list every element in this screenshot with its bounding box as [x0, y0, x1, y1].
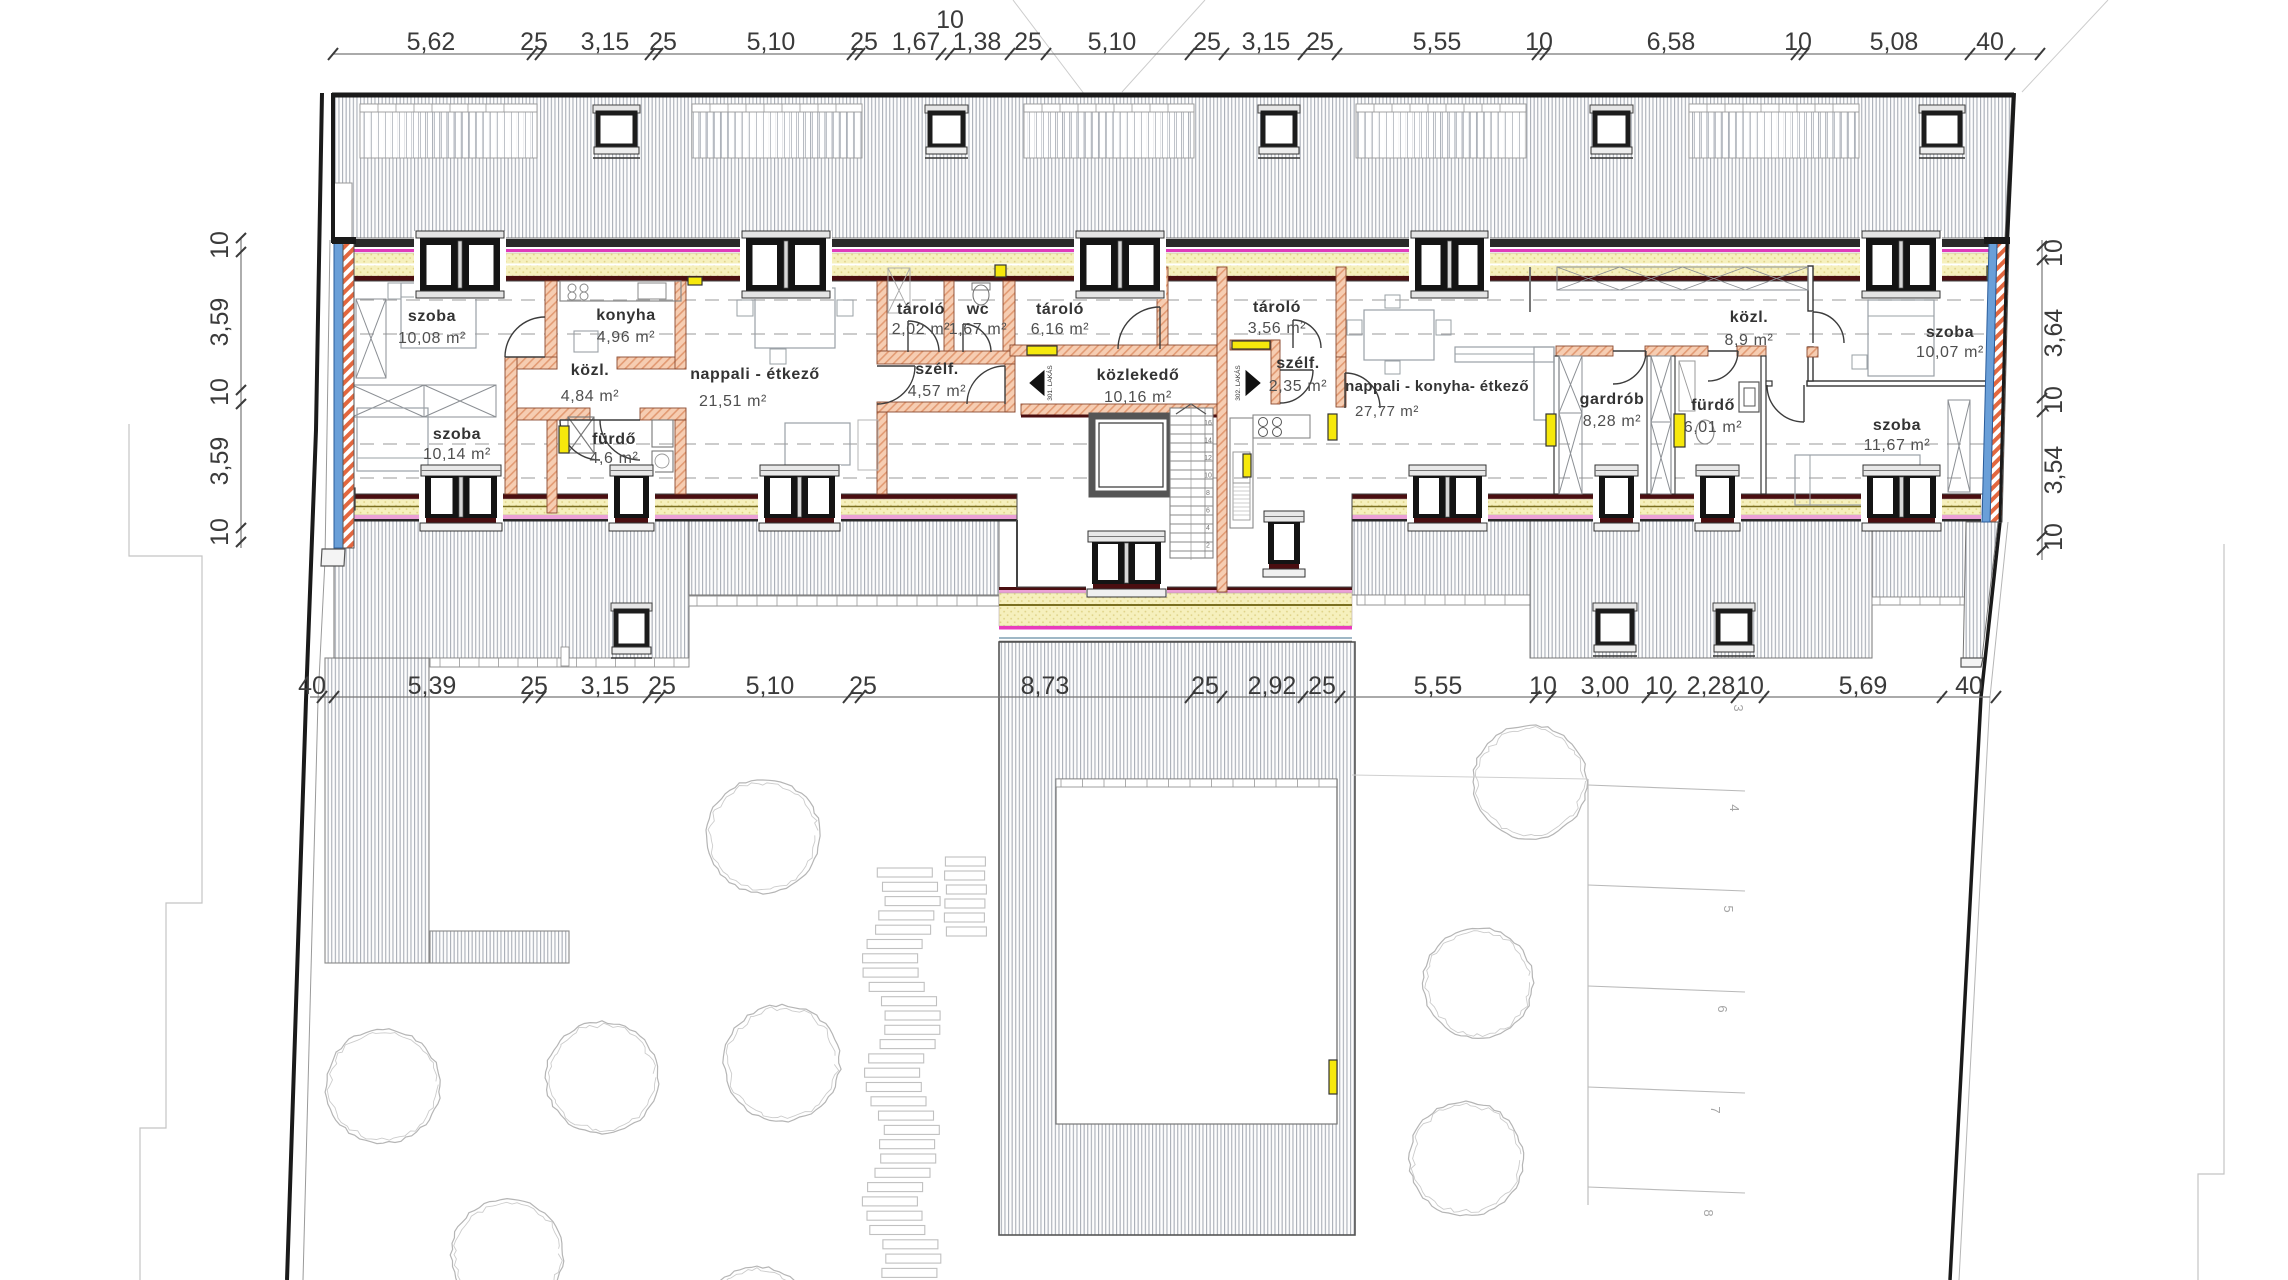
svg-text:3,59: 3,59	[206, 437, 234, 486]
svg-text:302. LAKÁS: 302. LAKÁS	[1233, 365, 1242, 401]
svg-text:5,08: 5,08	[1870, 28, 1919, 56]
svg-text:1,67: 1,67	[892, 28, 941, 56]
svg-text:8,73: 8,73	[1021, 672, 1070, 700]
svg-text:3,54: 3,54	[2040, 446, 2068, 495]
svg-text:11,67 m²: 11,67 m²	[1864, 437, 1931, 454]
svg-text:nappali - étkező: nappali - étkező	[690, 366, 820, 383]
svg-text:10: 10	[206, 378, 234, 406]
svg-text:3,15: 3,15	[581, 672, 630, 700]
svg-text:fürdő: fürdő	[1691, 397, 1735, 414]
svg-text:5,55: 5,55	[1413, 28, 1462, 56]
svg-text:szélf.: szélf.	[915, 361, 959, 378]
svg-text:12: 12	[1204, 455, 1212, 462]
svg-text:2,28: 2,28	[1687, 672, 1736, 700]
svg-text:25: 25	[1306, 28, 1334, 56]
svg-text:8: 8	[1701, 1209, 1716, 1216]
svg-text:10: 10	[2040, 523, 2068, 551]
svg-text:10: 10	[2040, 239, 2068, 267]
svg-text:10: 10	[936, 6, 964, 34]
svg-text:tároló: tároló	[897, 301, 945, 318]
svg-text:40: 40	[1976, 28, 2004, 56]
svg-text:szélf.: szélf.	[1276, 355, 1320, 372]
svg-text:3,15: 3,15	[1242, 28, 1291, 56]
svg-text:5,55: 5,55	[1414, 672, 1463, 700]
svg-text:10,14 m²: 10,14 m²	[423, 446, 491, 463]
svg-text:4,84 m²: 4,84 m²	[561, 388, 620, 405]
svg-text:2,02 m²: 2,02 m²	[892, 321, 951, 338]
svg-text:21,51 m²: 21,51 m²	[699, 393, 767, 410]
svg-text:5,39: 5,39	[408, 672, 457, 700]
svg-text:6,58: 6,58	[1647, 28, 1696, 56]
svg-text:40: 40	[1955, 672, 1983, 700]
svg-text:10: 10	[206, 518, 234, 546]
svg-text:5,69: 5,69	[1839, 672, 1888, 700]
svg-text:2,35 m²: 2,35 m²	[1269, 378, 1328, 395]
svg-text:16: 16	[1204, 420, 1212, 427]
svg-text:fürdő: fürdő	[592, 431, 636, 448]
svg-text:8: 8	[1206, 490, 1210, 497]
svg-text:8,9 m²: 8,9 m²	[1725, 332, 1774, 349]
svg-text:közl.: közl.	[1730, 309, 1769, 326]
svg-text:25: 25	[649, 28, 677, 56]
svg-text:10,08 m²: 10,08 m²	[398, 330, 466, 347]
svg-text:25: 25	[849, 672, 877, 700]
svg-text:1,67 m²: 1,67 m²	[949, 321, 1008, 338]
svg-text:nappali - konyha- étkező: nappali - konyha- étkező	[1345, 378, 1529, 395]
svg-text:5,10: 5,10	[746, 672, 795, 700]
svg-text:10: 10	[1736, 672, 1764, 700]
svg-text:szoba: szoba	[1926, 324, 1974, 341]
svg-text:3,64: 3,64	[2040, 309, 2068, 358]
svg-text:közl.: közl.	[571, 362, 610, 379]
svg-text:4,6 m²: 4,6 m²	[590, 450, 639, 467]
svg-text:8,28 m²: 8,28 m²	[1583, 413, 1642, 430]
svg-text:2: 2	[1206, 543, 1210, 550]
svg-text:10: 10	[1204, 473, 1212, 480]
svg-text:3: 3	[1731, 704, 1746, 711]
svg-text:25: 25	[1193, 28, 1221, 56]
svg-text:6: 6	[1715, 1005, 1730, 1012]
svg-text:5,62: 5,62	[407, 28, 456, 56]
svg-text:tároló: tároló	[1253, 299, 1301, 316]
svg-text:6,01 m²: 6,01 m²	[1684, 419, 1743, 436]
svg-text:25: 25	[520, 672, 548, 700]
svg-text:6: 6	[1206, 508, 1210, 515]
svg-text:wc: wc	[966, 301, 990, 318]
svg-text:gardrób: gardrób	[1580, 391, 1645, 408]
svg-text:10: 10	[206, 231, 234, 259]
svg-text:10: 10	[2040, 386, 2068, 414]
svg-text:tároló: tároló	[1036, 301, 1084, 318]
svg-text:3,00: 3,00	[1581, 672, 1630, 700]
svg-text:konyha: konyha	[596, 307, 656, 324]
svg-text:szoba: szoba	[1873, 417, 1921, 434]
svg-text:4: 4	[1206, 525, 1210, 532]
svg-text:szoba: szoba	[408, 308, 456, 325]
svg-text:4,96 m²: 4,96 m²	[597, 329, 656, 346]
svg-text:3,56 m²: 3,56 m²	[1248, 320, 1307, 337]
svg-text:3,15: 3,15	[581, 28, 630, 56]
svg-text:2,92: 2,92	[1248, 672, 1297, 700]
svg-text:7: 7	[1708, 1106, 1723, 1113]
svg-text:5,10: 5,10	[747, 28, 796, 56]
svg-text:14: 14	[1204, 438, 1212, 445]
svg-text:4,57 m²: 4,57 m²	[908, 383, 967, 400]
svg-text:5,10: 5,10	[1088, 28, 1137, 56]
svg-text:közlekedő: közlekedő	[1097, 367, 1180, 384]
svg-text:10,16 m²: 10,16 m²	[1104, 389, 1172, 406]
svg-text:25: 25	[1308, 672, 1336, 700]
svg-text:10,07 m²: 10,07 m²	[1916, 344, 1984, 361]
svg-text:3,59: 3,59	[206, 298, 234, 347]
svg-text:6,16 m²: 6,16 m²	[1031, 321, 1090, 338]
svg-text:5: 5	[1721, 905, 1736, 912]
svg-text:27,77 m²: 27,77 m²	[1355, 403, 1419, 420]
svg-text:4: 4	[1727, 804, 1742, 811]
svg-text:25: 25	[1191, 672, 1219, 700]
svg-text:szoba: szoba	[433, 426, 481, 443]
svg-text:301. LAKÁS: 301. LAKÁS	[1045, 365, 1054, 401]
svg-text:25: 25	[1014, 28, 1042, 56]
